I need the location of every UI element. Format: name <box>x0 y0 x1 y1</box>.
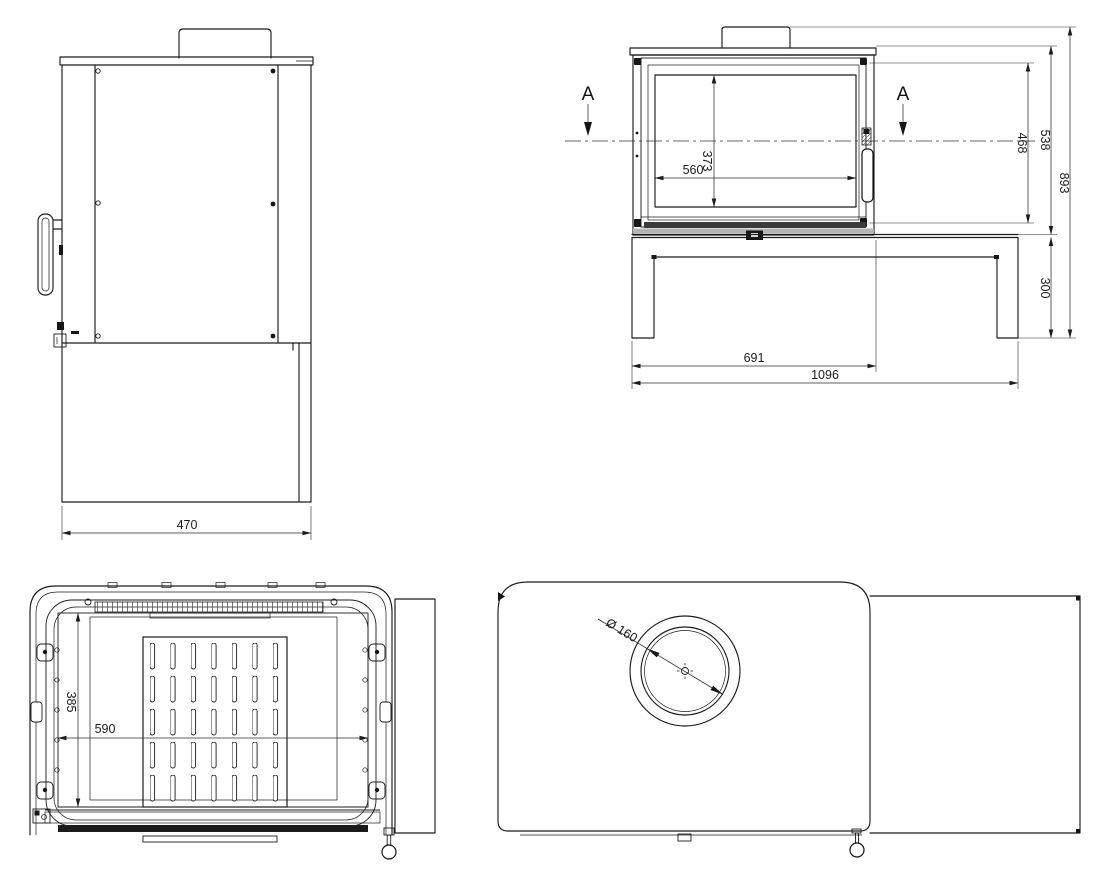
top-air-vent-strip <box>95 602 323 612</box>
dim-text-691: 691 <box>744 351 765 365</box>
door-top-tabs <box>108 583 325 588</box>
top-view: Ø 160 <box>498 582 1080 857</box>
screw-dots <box>96 69 276 339</box>
bench-top-view <box>870 596 1080 833</box>
ash-lip-dark-band <box>644 222 866 228</box>
flue-outlet <box>630 616 740 726</box>
dim-text-538: 538 <box>1038 130 1052 151</box>
hinge-bottom-left <box>37 782 53 799</box>
side-notch-right <box>380 702 391 722</box>
dim-glass-width-560: 560 <box>655 163 856 178</box>
dim-opening-height-385: 385 <box>64 613 78 807</box>
handle-mount <box>59 245 63 255</box>
door-corner-brackets <box>634 58 867 227</box>
dim-flue-diameter: Ø 160 <box>598 616 723 695</box>
top-plate-front <box>630 48 876 55</box>
dim-text-300: 300 <box>1038 278 1052 299</box>
dim-text-590: 590 <box>95 722 116 736</box>
stove-body-front <box>633 55 874 235</box>
dim-text-1096: 1096 <box>811 368 839 382</box>
section-label-a-right: A <box>897 84 910 105</box>
door-handle-side <box>38 214 62 295</box>
extension-lines <box>632 27 1076 389</box>
section-a-a-view: 385 590 <box>30 583 435 860</box>
dim-text-flue-diameter: Ø 160 <box>603 616 639 646</box>
door-frame <box>641 58 866 227</box>
drawing-sheet: 470 <box>0 0 1113 877</box>
dim-total-height-893: 893 <box>1057 27 1071 338</box>
latch-knob-top <box>850 829 864 857</box>
flue-collar-side <box>179 29 271 58</box>
hinge-top-right <box>369 644 385 661</box>
latch-knob-section <box>382 828 396 859</box>
section-marker-right: A <box>897 84 910 136</box>
bench-front <box>632 235 1018 339</box>
bench-section-side <box>395 599 435 833</box>
stove-body-side <box>62 65 311 502</box>
side-notch-left <box>31 702 42 722</box>
dim-depth-470: 470 <box>62 506 311 540</box>
dim-text-470: 470 <box>177 518 198 532</box>
section-label-a-left: A <box>582 84 595 105</box>
stove-technical-drawing: 470 <box>0 0 1113 877</box>
grate-floor-assembly <box>33 807 380 842</box>
baffle-plate-slotted <box>143 637 287 807</box>
dim-total-width-1096: 1096 <box>632 368 1018 383</box>
stove-top-outline <box>498 582 870 831</box>
door-latch-front <box>862 128 871 145</box>
dim-body-height-538: 538 <box>1038 46 1052 235</box>
section-marker-left: A <box>582 84 595 136</box>
dim-text-373: 373 <box>700 151 714 172</box>
dim-door-height-468: 468 <box>1015 63 1029 223</box>
dim-text-893: 893 <box>1057 173 1071 194</box>
hinge-bottom-right <box>369 782 385 799</box>
top-plate-side <box>60 57 313 65</box>
dim-text-468: 468 <box>1015 133 1029 154</box>
door-handle-front <box>862 149 873 202</box>
dim-stove-width-691: 691 <box>632 351 876 366</box>
side-view: 470 <box>38 29 313 540</box>
dim-text-385: 385 <box>64 692 78 713</box>
pedestal-side <box>62 343 311 502</box>
flue-collar-front <box>722 27 790 48</box>
corner-marker <box>498 592 505 601</box>
dim-base-height-300: 300 <box>1038 238 1052 339</box>
hinge-top-left <box>37 644 53 661</box>
bottom-latch <box>746 231 763 241</box>
front-view: A A 560 373 468 538 300 <box>565 27 1076 389</box>
